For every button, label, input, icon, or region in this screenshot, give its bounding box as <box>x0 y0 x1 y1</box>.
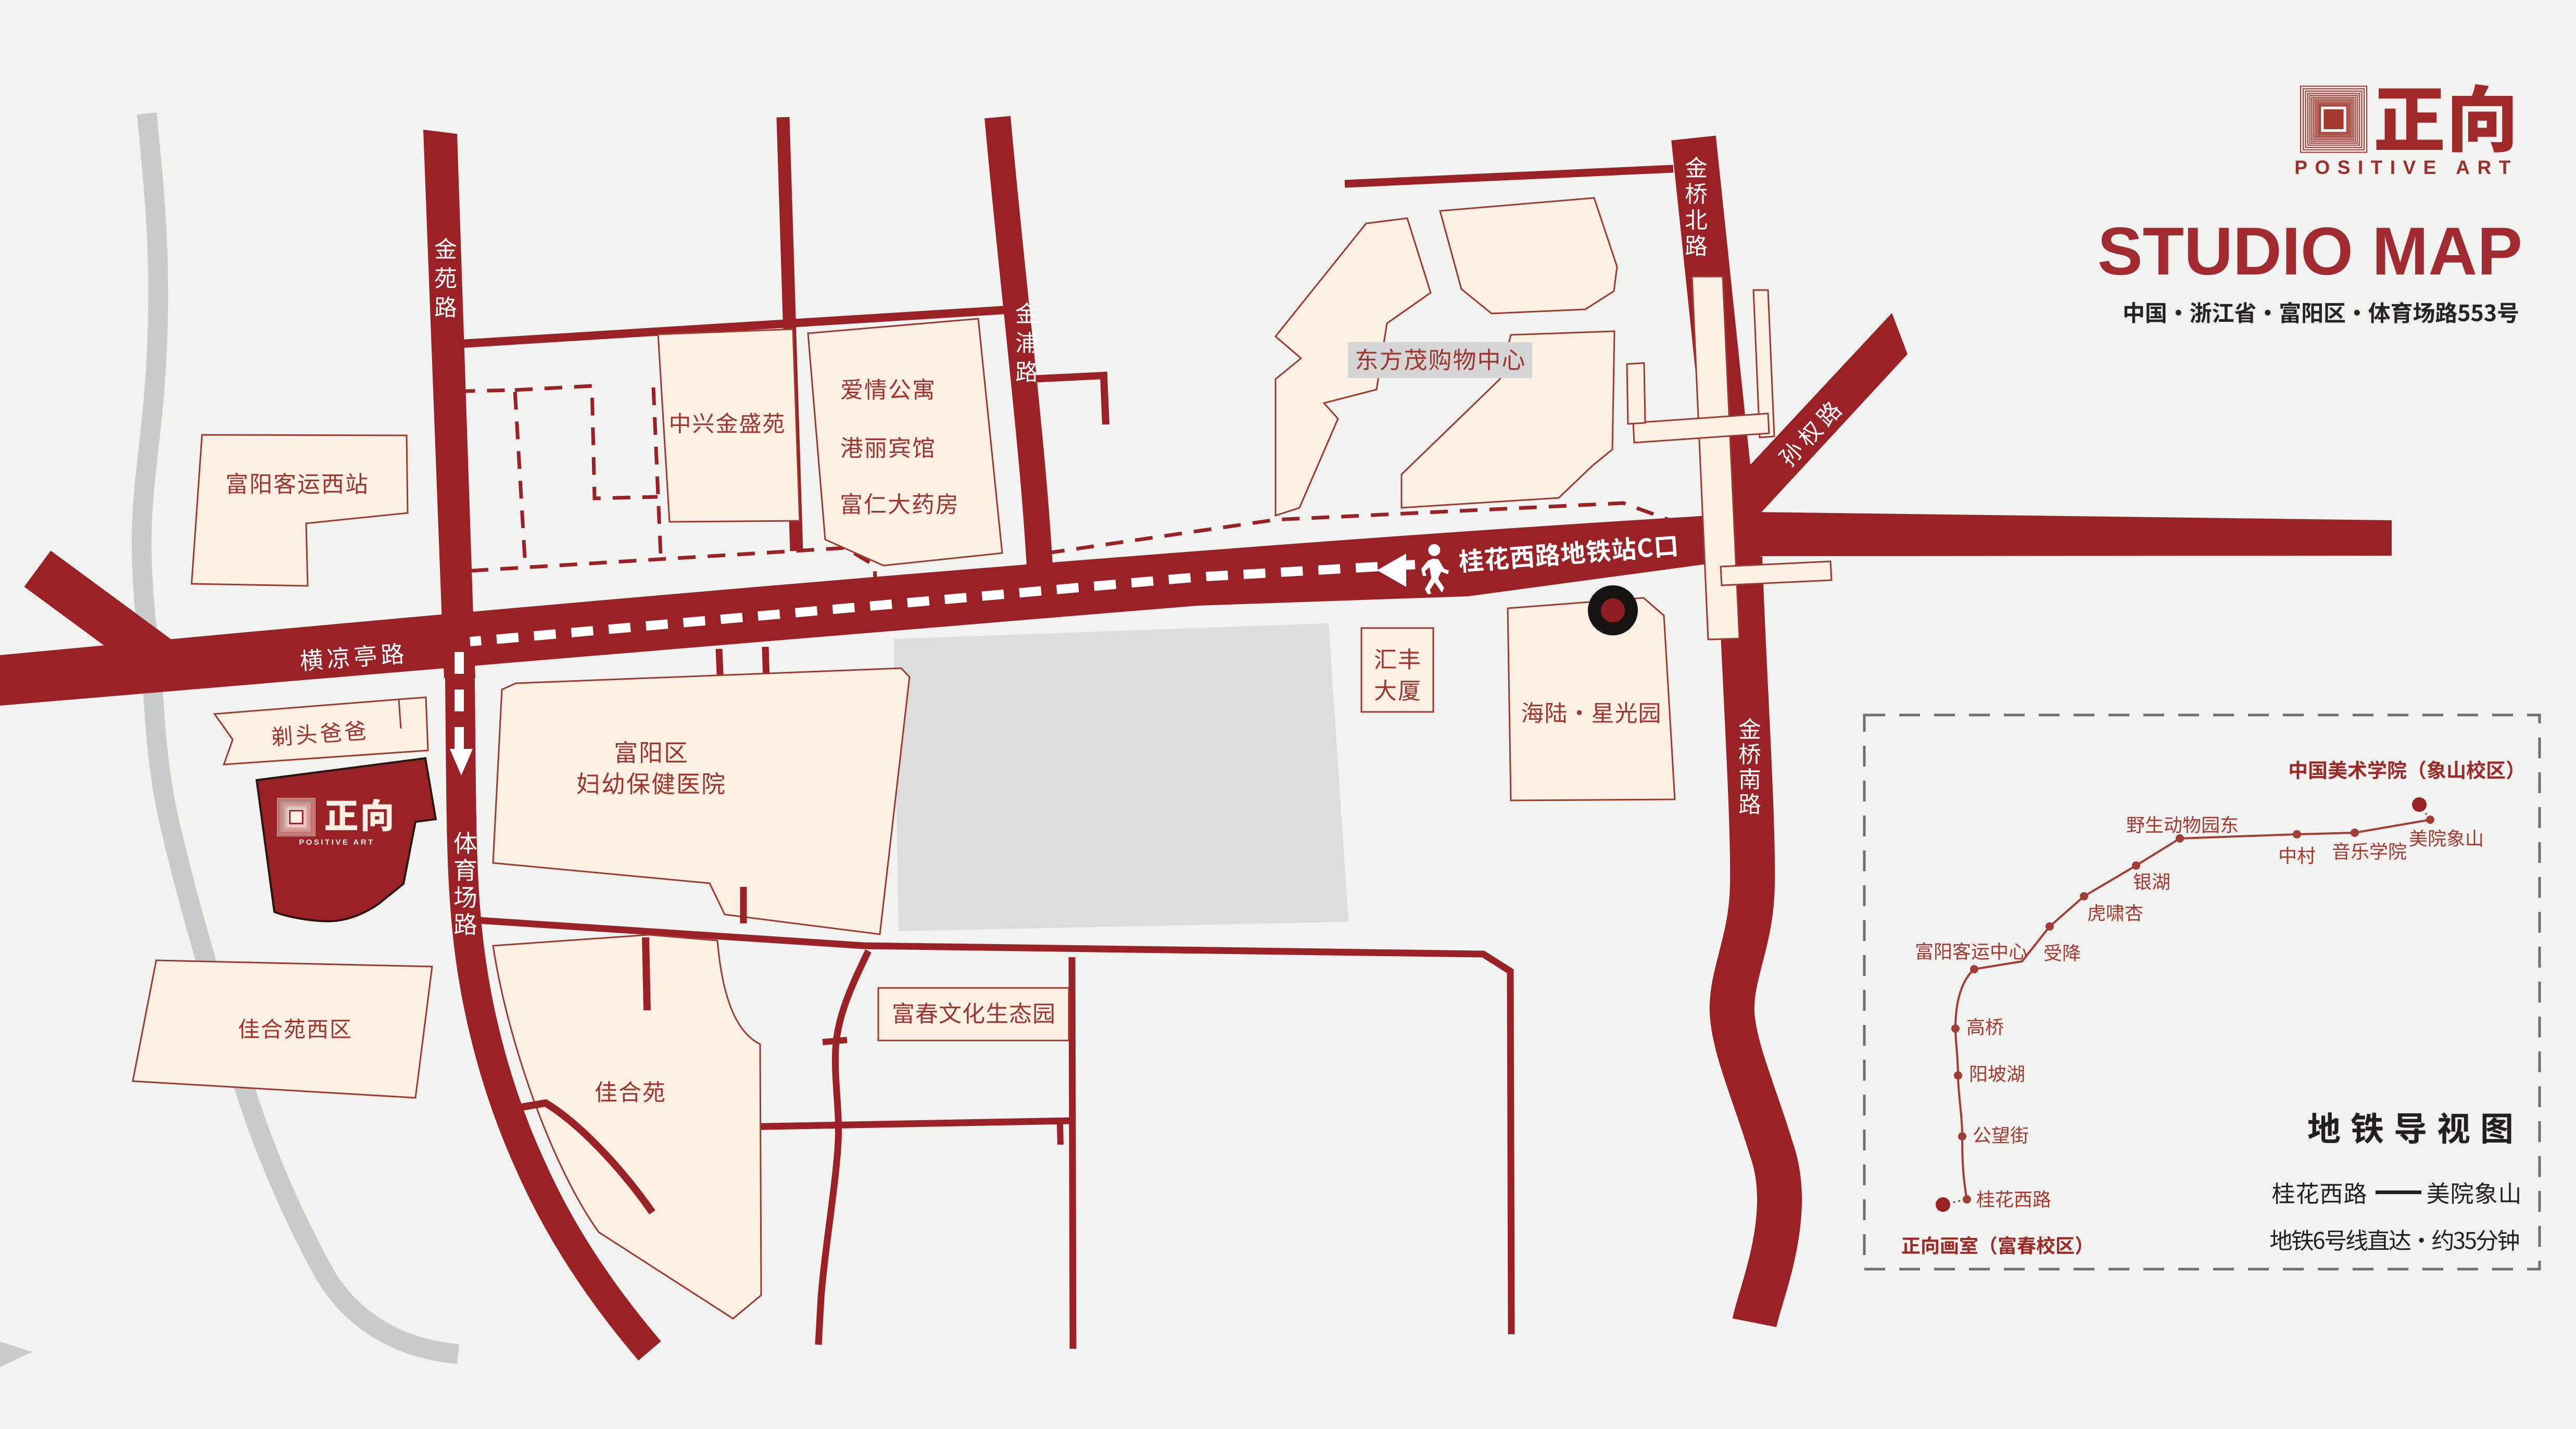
svg-text:STUDIO MAP: STUDIO MAP <box>2098 213 2522 289</box>
svg-text:POSITIVE ART: POSITIVE ART <box>299 838 375 847</box>
svg-text:POSITIVE ART: POSITIVE ART <box>2294 157 2518 178</box>
